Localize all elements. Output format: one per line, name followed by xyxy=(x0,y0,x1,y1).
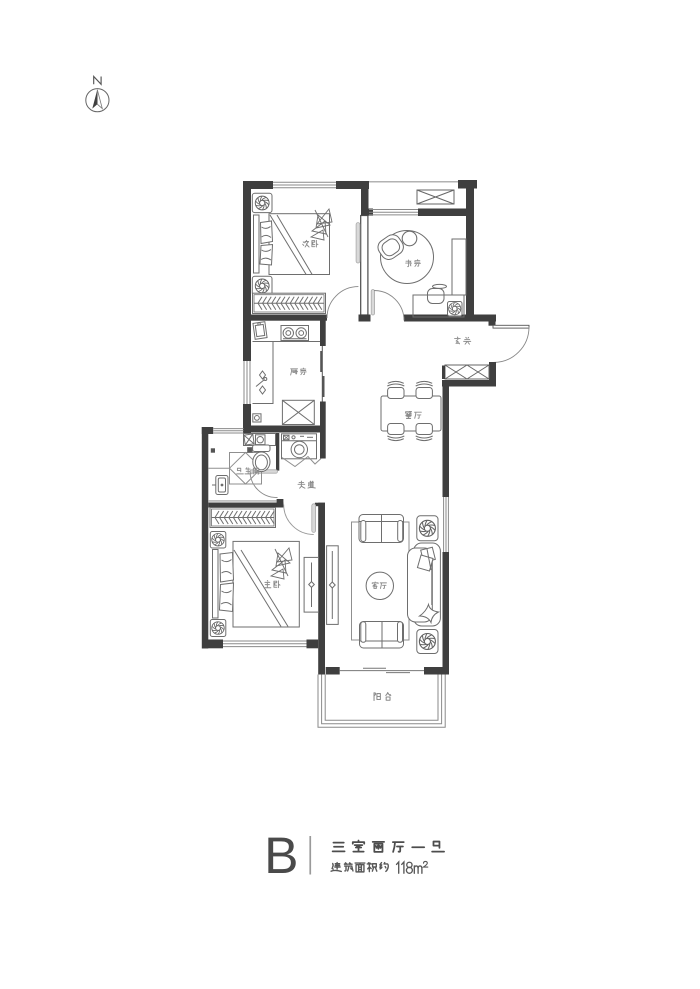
svg-text:B: B xyxy=(264,826,298,884)
